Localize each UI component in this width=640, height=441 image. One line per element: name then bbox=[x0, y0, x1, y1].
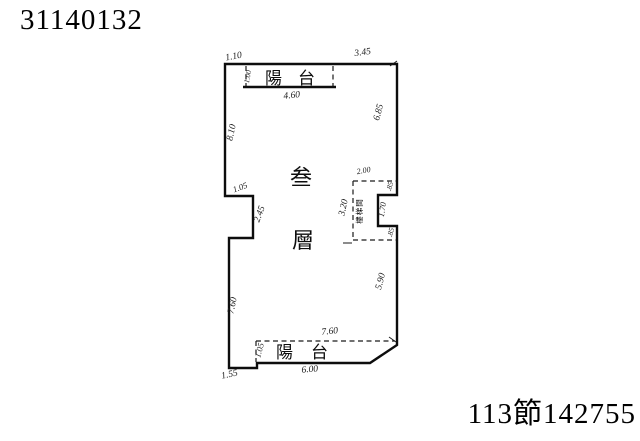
floor-plan-drawing: 1.10 3.45 陽台 4.60 1.00 8.10 1.05 2.45 7.… bbox=[0, 0, 640, 441]
dim-left-upper: 8.10 bbox=[225, 123, 238, 142]
dim-top-balcony-width: 4.60 bbox=[283, 90, 301, 102]
dim-stairwell-seg-mid: 1.70 bbox=[376, 201, 389, 218]
top-balcony-label: 陽台 bbox=[265, 69, 331, 88]
dim-top-right: 3.45 bbox=[353, 47, 372, 59]
dim-bottom-balcony-width: 6.00 bbox=[301, 364, 319, 375]
dim-top-balcony-depth: 1.00 bbox=[242, 69, 253, 84]
dim-bottom-left-seg: 1.55 bbox=[220, 368, 239, 381]
stairwell-label: 樓梯間 bbox=[354, 198, 364, 224]
dim-top-left: 1.10 bbox=[225, 51, 243, 64]
dim-right-lower: 5.90 bbox=[374, 272, 388, 291]
floor-label-char-1: 叁 bbox=[290, 165, 312, 190]
scanned-floor-plan-page: 31140132 113節142755 1.10 3.45 陽台 4.60 1.… bbox=[0, 0, 640, 441]
dim-left-notch-side: 2.45 bbox=[253, 205, 268, 224]
dim-stairwell-seg-top: .85 bbox=[384, 180, 395, 192]
dim-stairwell-seg-bottom: .85 bbox=[385, 226, 396, 238]
bottom-balcony-label: 陽台 bbox=[276, 343, 346, 362]
dim-stairwell-width: 2.00 bbox=[356, 165, 371, 176]
dim-right-upper: 6.85 bbox=[372, 103, 386, 122]
dim-bottom-balcony-span: 7.60 bbox=[321, 326, 339, 338]
dim-stairwell-height: 3.20 bbox=[337, 198, 350, 218]
dim-left-notch-step: 1.05 bbox=[231, 180, 248, 194]
dim-left-lower: 7.60 bbox=[226, 296, 239, 315]
building-outline bbox=[225, 64, 397, 368]
floor-label-char-2: 層 bbox=[292, 228, 314, 253]
dim-bottom-balcony-side: 1.05 bbox=[252, 342, 266, 359]
